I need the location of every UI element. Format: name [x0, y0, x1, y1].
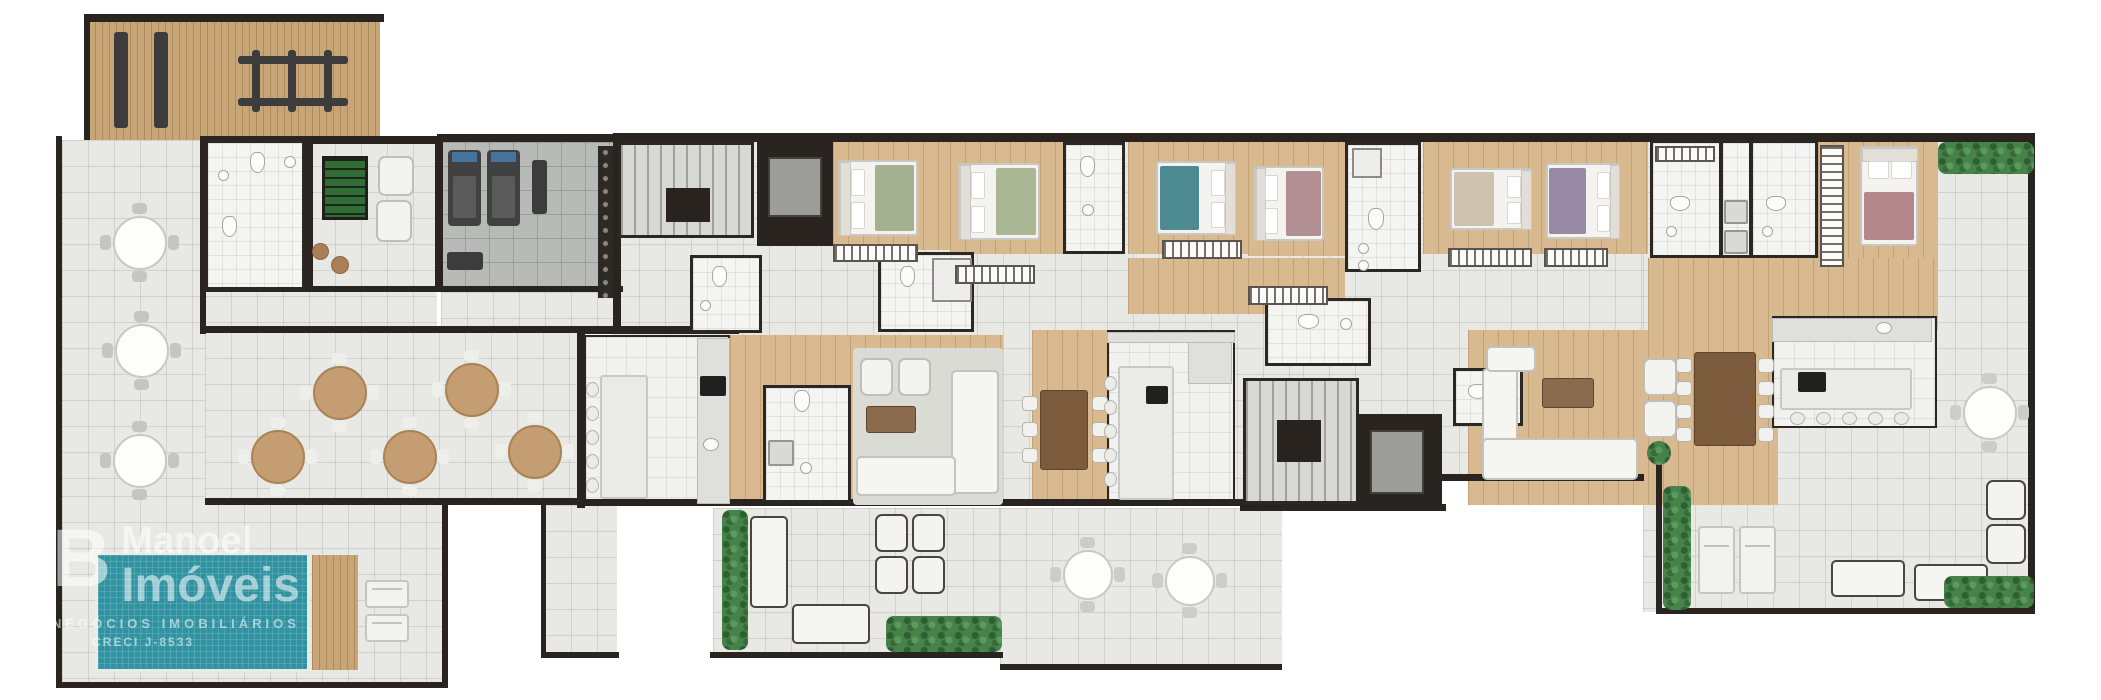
dining-chair: [1022, 422, 1038, 437]
closet: [955, 265, 1035, 284]
hall-round-table: [383, 430, 437, 484]
bar-stool: [586, 406, 599, 421]
kitchen-sink: [1876, 322, 1892, 334]
terrace2-round-table: [1165, 556, 1215, 606]
wall-terrace3-bottom: [1660, 608, 2035, 614]
wall-terrace2-bottom: [1000, 664, 1282, 670]
bed-blanket: [1454, 172, 1495, 225]
bar-stool: [1894, 412, 1909, 425]
dining-chair: [1758, 404, 1774, 419]
bed-double: [1156, 161, 1236, 235]
weight-rack-post: [288, 50, 296, 112]
outdoor-armchair: [1986, 480, 2026, 520]
washing-machine: [1724, 230, 1748, 254]
toilet: [712, 266, 727, 287]
shower: [1352, 148, 1382, 178]
hedge: [722, 510, 748, 650]
closet: [1248, 286, 1328, 305]
bed-double: [1254, 166, 1324, 241]
hedge: [1944, 576, 2034, 608]
bed-pillow: [1265, 175, 1278, 201]
treadmill-screen: [491, 152, 516, 162]
dumbbell-rack: [598, 146, 613, 298]
terrace-round-table: [113, 216, 167, 270]
elevator2-car: [1370, 430, 1424, 494]
wall-terrace3-left: [1656, 442, 1662, 614]
sofa-section: [951, 370, 999, 494]
sink: [1358, 243, 1369, 254]
floor-plan: B Manoel Imóveis NEGÓCIOS IMOBILIÁRIOS C…: [0, 0, 2101, 700]
wall-deck-left: [84, 14, 90, 140]
kitchen2-cabinet: [1188, 340, 1232, 384]
bar-stool: [1790, 412, 1805, 425]
wall-games-gym: [435, 140, 443, 290]
armchair: [1643, 400, 1677, 438]
bed-pillow: [1597, 205, 1610, 231]
bar-stool: [1816, 412, 1831, 425]
bar-stool: [1104, 448, 1117, 463]
exercise-machine: [114, 32, 128, 128]
bar-stool: [586, 478, 599, 493]
washing-machine: [1724, 200, 1748, 224]
pool-deck: [312, 555, 358, 670]
bed-headboard: [1225, 163, 1236, 235]
bed-headboard: [960, 165, 971, 240]
terrace1-left: [545, 505, 617, 655]
treadmill-screen: [452, 152, 477, 162]
armchair: [898, 358, 931, 396]
closet: [1448, 248, 1532, 267]
kitchen1-island: [600, 375, 648, 499]
dining-table: [1040, 390, 1088, 470]
bed-pillow: [1597, 172, 1610, 198]
bar-stool: [1104, 400, 1117, 415]
terrace-round-table: [115, 324, 169, 378]
bed-pillow: [971, 206, 985, 233]
sun-lounger: [365, 614, 409, 642]
sofa-section: [1482, 438, 1638, 480]
closet: [1655, 146, 1715, 162]
closet: [1544, 248, 1608, 267]
kitchen-sink: [703, 438, 719, 451]
bathroom-apt2: [1265, 298, 1371, 366]
bed-blanket: [1864, 192, 1914, 240]
bed-headboard: [1521, 170, 1532, 230]
bed-headboard: [1862, 148, 1918, 162]
swimming-pool: [95, 552, 310, 672]
wall-left-edge: [56, 136, 62, 688]
bed-blanket: [875, 165, 915, 231]
dining-chair: [1676, 358, 1692, 373]
outdoor-sofa: [750, 516, 788, 608]
bed-pillow: [851, 169, 865, 195]
sink: [1666, 226, 1677, 237]
bed-pillow: [1507, 202, 1521, 224]
kitchen1-counter: [697, 338, 730, 504]
bed-pillow: [1265, 208, 1278, 234]
wall-hall-right: [577, 326, 585, 508]
outdoor-armchair: [1986, 524, 2026, 564]
bar-stool: [1104, 376, 1117, 391]
sun-lounger: [1739, 526, 1776, 594]
sink: [1358, 260, 1369, 271]
gym-terrace-deck: [88, 22, 380, 140]
sun-lounger: [365, 580, 409, 608]
bar-stool: [586, 382, 599, 397]
cooktop: [1146, 386, 1168, 404]
hall-round-table: [251, 430, 305, 484]
wall-terrace1-bottom-b: [710, 652, 1003, 658]
bathroom-apt1b: [690, 255, 762, 333]
bed-blanket: [1286, 171, 1320, 236]
wall-terrace1-left: [541, 505, 546, 657]
toilet: [1368, 208, 1384, 230]
wall-left-block-right: [442, 500, 448, 688]
dining-table: [1694, 352, 1756, 446]
wall-bath-games: [305, 140, 313, 292]
bed-blanket: [996, 168, 1037, 235]
toilet: [1298, 314, 1319, 329]
outdoor-armchair: [912, 514, 945, 552]
hall-round-table: [313, 366, 367, 420]
gym-corridor: [441, 292, 615, 326]
bar-stool: [1104, 424, 1117, 439]
kitchen3-counter: [1772, 318, 1932, 342]
sink: [800, 462, 812, 474]
sink: [1082, 204, 1094, 216]
toilet: [222, 216, 237, 237]
planter-hedge: [1938, 142, 2034, 174]
outdoor-armchair: [912, 556, 945, 594]
plant-pot: [1647, 441, 1671, 465]
bed-pillow: [851, 202, 865, 228]
hedge: [1663, 486, 1691, 610]
closet: [833, 244, 918, 262]
terrace2: [1000, 508, 1282, 666]
bed-double: [958, 163, 1040, 240]
stair1-core: [666, 188, 710, 222]
dining-chair: [1022, 396, 1038, 411]
toilet: [250, 152, 265, 173]
sofa-section: [856, 456, 956, 496]
coffee-table: [1542, 378, 1594, 408]
sink: [218, 170, 229, 181]
bar-stool: [1104, 472, 1117, 487]
bed-double: [1546, 163, 1620, 239]
bed-pillow: [1868, 161, 1888, 178]
dining-chair: [1676, 404, 1692, 419]
toilet: [1766, 196, 1786, 211]
exercise-bike: [532, 160, 547, 214]
dining-chair: [1758, 427, 1774, 442]
bed-pillow: [1891, 161, 1911, 178]
outdoor-armchair: [875, 556, 908, 594]
hall-round-table: [445, 363, 499, 417]
toilet: [1670, 196, 1690, 211]
cooktop: [700, 376, 726, 396]
sun-lounger: [1698, 526, 1735, 594]
coffee-table: [866, 406, 916, 433]
exercise-machine: [154, 32, 168, 128]
bed-headboard: [840, 162, 851, 236]
outdoor-loveseat: [792, 604, 870, 644]
bed-blanket: [1549, 168, 1585, 234]
wall-bottom-left: [56, 682, 448, 688]
dining-chair: [1758, 358, 1774, 373]
bed-pillow: [1211, 170, 1225, 196]
pouf: [331, 256, 349, 274]
wall-hall-top: [200, 326, 620, 333]
armchair: [860, 358, 893, 396]
sink: [1340, 318, 1352, 330]
toilet: [794, 390, 810, 412]
wall-right-edge: [2028, 133, 2035, 614]
bed-pillow: [1507, 176, 1521, 198]
terrace-round-table: [113, 434, 167, 488]
cooktop: [1798, 372, 1826, 392]
dining-chair: [1676, 381, 1692, 396]
wall-hall-bottom: [205, 498, 585, 505]
toilet: [900, 266, 915, 287]
bed-double: [1450, 168, 1532, 230]
dining-chair: [1022, 448, 1038, 463]
outdoor-sofa: [1831, 560, 1905, 597]
bed-pillow: [1211, 202, 1225, 228]
armchair: [376, 200, 412, 242]
sink: [700, 300, 711, 311]
pouf: [312, 243, 329, 260]
bed-double: [838, 160, 918, 236]
washing-machine: [768, 440, 794, 466]
armchair: [1643, 358, 1677, 396]
dining-chair: [1758, 381, 1774, 396]
weight-rack-post: [324, 50, 332, 112]
dining-chair: [1676, 427, 1692, 442]
bed-headboard: [1610, 165, 1620, 239]
kitchen2-counter: [1107, 332, 1235, 343]
bed-double: [1860, 146, 1918, 246]
wall-deck-top: [84, 14, 384, 22]
bar-stool: [586, 430, 599, 445]
wall-terrace1-bottom-a: [541, 652, 619, 658]
bed-blanket: [1160, 166, 1200, 230]
terrace3-round-table: [1963, 386, 2017, 440]
wall-gym-top: [437, 134, 623, 142]
stair2-core: [1277, 420, 1321, 462]
closet: [1162, 240, 1242, 259]
weight-rack-post: [252, 50, 260, 112]
armchair: [378, 156, 414, 196]
bar-stool: [1842, 412, 1857, 425]
outdoor-armchair: [875, 514, 908, 552]
toilet: [1080, 156, 1095, 177]
weight-bench: [447, 252, 483, 270]
hall-round-table: [508, 425, 562, 479]
bar-stool: [586, 454, 599, 469]
sink: [1762, 226, 1773, 237]
elevator1-car: [768, 157, 822, 217]
hedge: [886, 616, 1002, 652]
foosball-table: [322, 156, 368, 220]
sofa-chaise: [1486, 346, 1536, 372]
wardrobe-tall: [1820, 145, 1844, 267]
sink: [284, 156, 296, 168]
terrace2-round-table: [1063, 550, 1113, 600]
bed-pillow: [971, 172, 985, 199]
bar-stool: [1868, 412, 1883, 425]
